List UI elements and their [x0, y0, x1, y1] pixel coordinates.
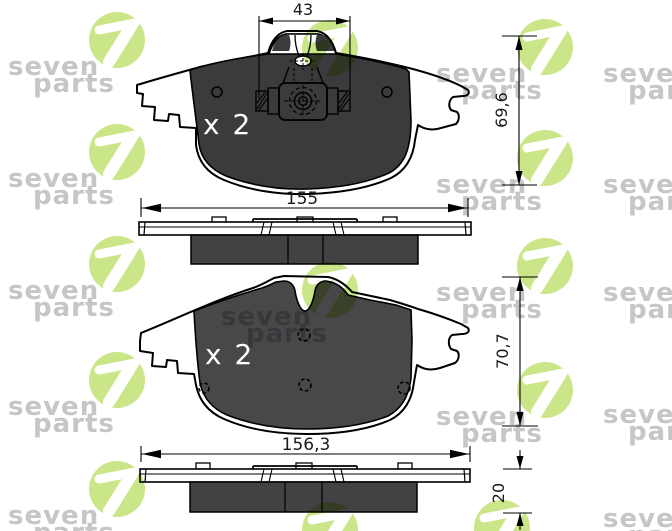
- dim-69-6-value: 69,6: [492, 92, 511, 128]
- pad2-side-tab3: [398, 463, 412, 469]
- pad1-side-view: [139, 217, 471, 264]
- pad2-side-friction: [190, 482, 417, 512]
- pad2-quantity-label: x 2: [205, 338, 254, 371]
- dim-156-3-value: 156,3: [282, 435, 331, 455]
- dim-156-3: 156,3: [141, 435, 470, 462]
- dim-43-value: 43: [293, 0, 313, 19]
- pad1-front-view: x 2: [137, 31, 469, 194]
- pad1-side-friction: [191, 235, 418, 264]
- dim-155-value: 155: [286, 189, 318, 209]
- dim-20: 20: [489, 450, 532, 530]
- dim-20-value: 20: [489, 483, 508, 503]
- technical-drawing: x 2 43 69,6: [0, 0, 672, 531]
- brake-pad-drawing-canvas: x 2 43 69,6: [0, 0, 672, 531]
- pad2-side-tab1: [196, 463, 210, 469]
- pad2-side-view: [140, 463, 470, 512]
- pad2-front-view: x 2: [140, 276, 469, 434]
- dim-69-6: 69,6: [492, 36, 537, 185]
- pad2-side-backplate: [140, 469, 470, 482]
- dim-155: 155: [141, 189, 468, 217]
- dim-70-7: 70,7: [493, 277, 538, 426]
- pad1-side-backplate: [139, 222, 471, 235]
- dim-70-7-value: 70,7: [493, 333, 512, 369]
- pad1-quantity-label: x 2: [203, 108, 252, 141]
